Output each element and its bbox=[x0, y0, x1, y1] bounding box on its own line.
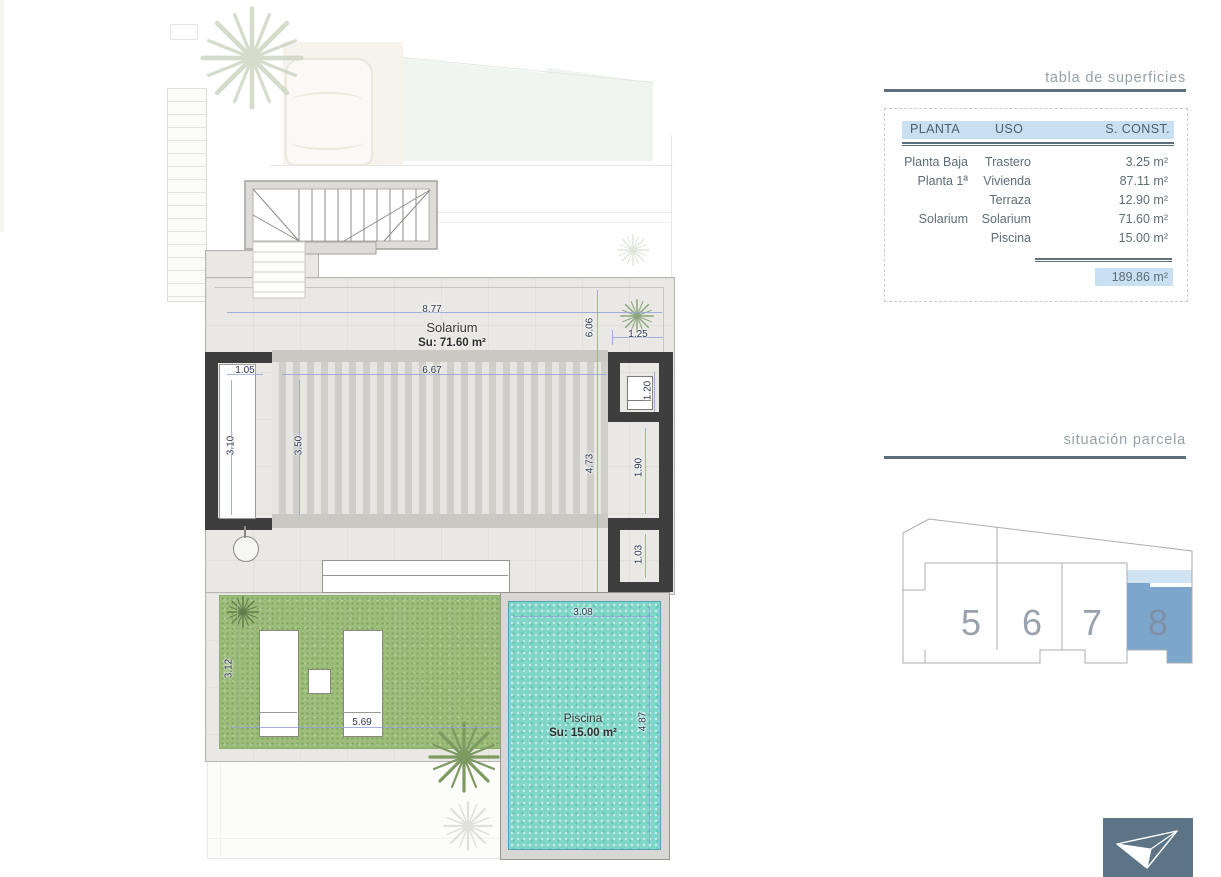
dim-line bbox=[649, 606, 650, 844]
bench bbox=[322, 560, 510, 593]
pool-label: Piscina bbox=[543, 711, 623, 725]
title-rule bbox=[884, 456, 1186, 459]
neighbor-roof-ghost bbox=[403, 55, 653, 161]
shower-pipe bbox=[244, 526, 246, 538]
outdoor-shower bbox=[233, 536, 259, 562]
car-rear-line bbox=[291, 134, 363, 150]
wall bbox=[608, 582, 673, 592]
wall bbox=[608, 412, 673, 422]
table-cell: 87.11 m² bbox=[1068, 172, 1168, 191]
wall bbox=[205, 352, 218, 530]
dim-1.20: 1.20 bbox=[643, 374, 654, 408]
bench-line bbox=[322, 575, 508, 576]
pool-area-label: Su: 15.00 m² bbox=[543, 727, 623, 739]
table-cell: Solarium bbox=[975, 210, 1031, 229]
sun-lounger bbox=[259, 630, 299, 737]
solarium-area-label: Su: 71.60 m² bbox=[392, 337, 512, 349]
table-cell: Trastero bbox=[975, 153, 1031, 172]
side-table bbox=[308, 669, 331, 694]
table-cell: 3.25 m² bbox=[1068, 153, 1168, 172]
dim-line bbox=[645, 534, 646, 578]
plot-number-5: 5 bbox=[961, 602, 981, 643]
table-cell: Solarium bbox=[884, 210, 968, 229]
col-header-uso: USO bbox=[995, 122, 1023, 136]
company-logo bbox=[1103, 818, 1193, 877]
table-cell: Terraza bbox=[975, 191, 1031, 210]
plot-number-8: 8 bbox=[1148, 602, 1168, 643]
pergola-beam-top bbox=[272, 350, 608, 362]
parcela-diagram: 5 6 7 8 bbox=[885, 505, 1195, 680]
palm-tree-icon bbox=[615, 232, 651, 268]
dim-line bbox=[612, 330, 613, 345]
dim-4.87: 4.87 bbox=[638, 705, 649, 739]
solarium-label: Solarium bbox=[392, 320, 512, 335]
surfaces-table-title: tabla de superficies bbox=[884, 70, 1186, 86]
palm-tree-icon bbox=[194, 0, 310, 116]
dim-3.10: 3.10 bbox=[226, 429, 237, 463]
table-cell: 15.00 m² bbox=[1068, 229, 1168, 248]
dim-8.77: 8.77 bbox=[412, 304, 452, 315]
total-rule bbox=[1035, 258, 1172, 262]
left-edge-strip bbox=[0, 0, 4, 232]
dim-1.90: 1.90 bbox=[634, 451, 645, 485]
lower-terrace-line bbox=[220, 760, 221, 857]
paper-plane-icon bbox=[1103, 818, 1193, 877]
palm-tree-icon bbox=[225, 594, 261, 630]
col-header-planta: PLANTA bbox=[910, 122, 960, 136]
total-value: 189.86 m² bbox=[1068, 268, 1168, 287]
palm-tree-icon bbox=[440, 798, 496, 854]
table-cell: Piscina bbox=[975, 229, 1031, 248]
table-cell: Vivienda bbox=[975, 172, 1031, 191]
lounger-line bbox=[343, 712, 381, 713]
lounger-line bbox=[259, 712, 297, 713]
plot-number-7: 7 bbox=[1082, 602, 1102, 643]
table-cell: 71.60 m² bbox=[1068, 210, 1168, 229]
plot-number-6: 6 bbox=[1022, 602, 1042, 643]
pergola-beam-bottom bbox=[272, 514, 608, 528]
col-header-sconst: S. CONST. bbox=[1070, 122, 1170, 136]
dim-4.73: 4.73 bbox=[585, 447, 596, 481]
dim-line bbox=[597, 290, 598, 592]
wall bbox=[659, 352, 673, 592]
dim-1.03: 1.03 bbox=[634, 538, 645, 572]
table-cell: 12.90 m² bbox=[1068, 191, 1168, 210]
dim-6.06: 6.06 bbox=[585, 311, 596, 345]
dim-3.50: 3.50 bbox=[294, 429, 305, 463]
dim-1.25: 1.25 bbox=[618, 329, 658, 340]
lower-wall-line bbox=[270, 165, 673, 166]
palm-tree-icon bbox=[424, 717, 504, 797]
parcela-title: situación parcela bbox=[884, 432, 1186, 448]
dim-6.67: 6.67 bbox=[412, 365, 452, 376]
dim-3.08: 3.08 bbox=[563, 607, 603, 618]
plot8-strip bbox=[1127, 570, 1192, 583]
header-rule bbox=[902, 142, 1174, 146]
dim-5.69: 5.69 bbox=[342, 717, 382, 728]
pergola-slats bbox=[272, 362, 608, 514]
exterior-stair-ghost bbox=[167, 88, 207, 302]
table-cell: Planta Baja bbox=[884, 153, 968, 172]
wall bbox=[608, 518, 673, 530]
table-cell: Planta 1ª bbox=[884, 172, 968, 191]
dim-line bbox=[237, 600, 238, 745]
interior-stair bbox=[244, 180, 439, 302]
dim-3.12: 3.12 bbox=[224, 652, 235, 686]
dim-line bbox=[645, 428, 646, 514]
title-rule bbox=[884, 89, 1186, 92]
dim-line bbox=[654, 372, 655, 412]
dim-1.05: 1.05 bbox=[226, 365, 264, 376]
lower-wall-line-v bbox=[671, 135, 672, 277]
floorplan-sheet: 8.77 6.06 4.73 1.25 1.05 6.67 3.10 3.50 … bbox=[0, 0, 1221, 877]
